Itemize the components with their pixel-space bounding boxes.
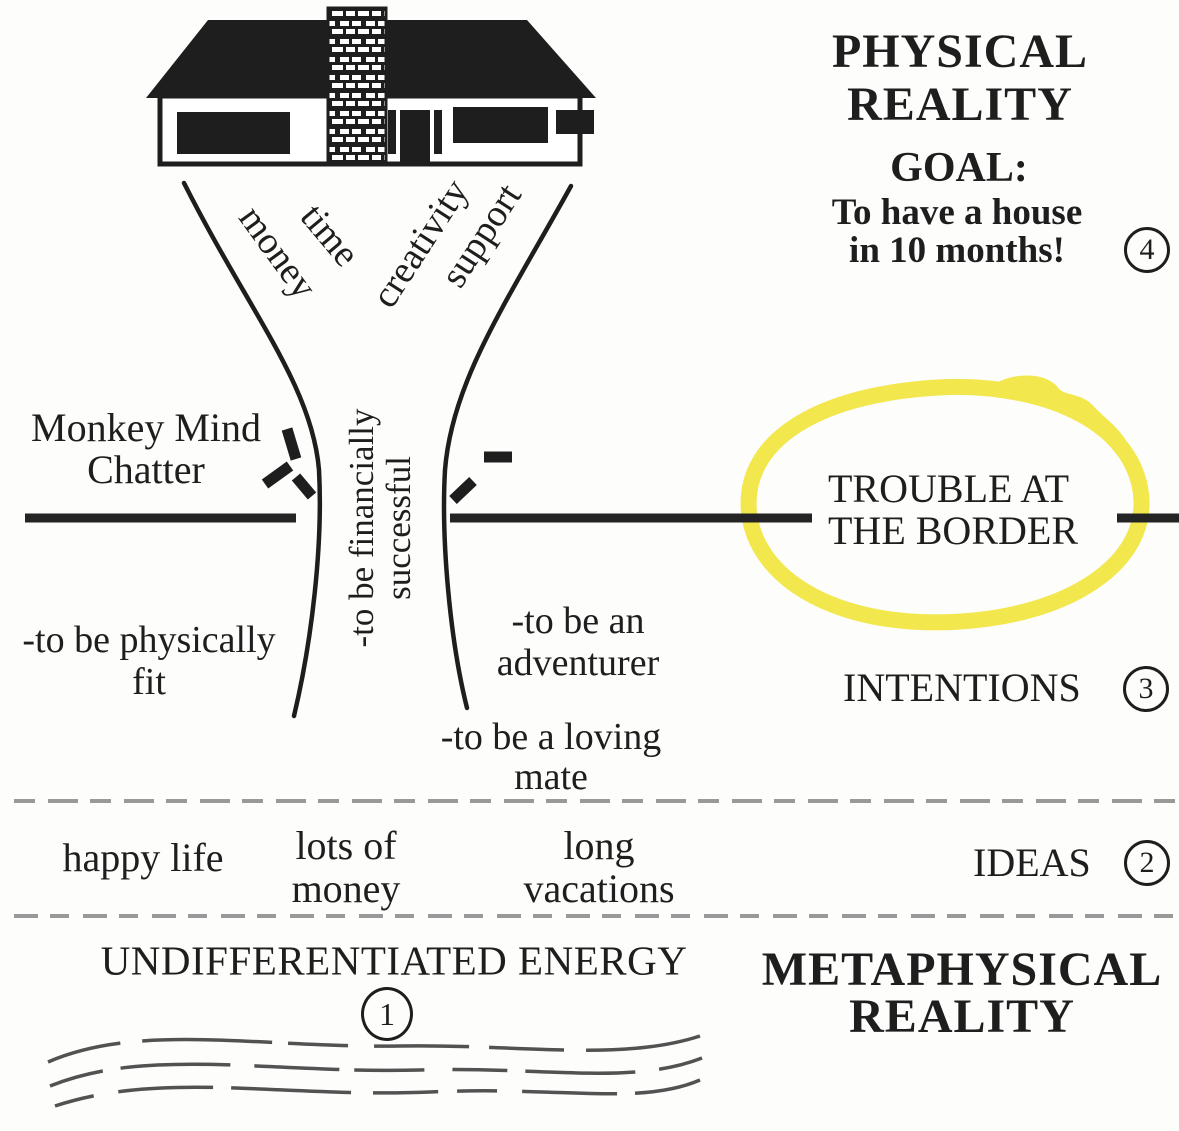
fit-line1: -to be physically xyxy=(22,619,275,661)
mate-line2: mate xyxy=(441,757,662,797)
chimney xyxy=(328,8,386,164)
step-4-badge: 4 xyxy=(1124,227,1170,273)
adventurer-line1: -to be an xyxy=(497,600,659,642)
lots-line1: lots of xyxy=(292,824,401,867)
core-intention-line2: successful xyxy=(380,408,417,647)
metaphysical-line1: METAPHYSICAL xyxy=(762,946,1162,993)
idea-long-vacations: long vacations xyxy=(523,824,674,910)
goal-label: GOAL: xyxy=(890,146,1028,190)
energy-waves xyxy=(48,1036,702,1106)
adventurer-line2: adventurer xyxy=(497,642,659,684)
garage-door xyxy=(177,112,290,154)
physical-reality-line2: REALITY xyxy=(832,78,1088,131)
goal-text-line2: in 10 months! xyxy=(832,232,1083,270)
undifferentiated-energy-label: UNDIFFERENTIATED ENERGY xyxy=(101,939,688,982)
physical-reality-title: PHYSICAL REALITY xyxy=(832,25,1088,131)
monkey-mind-line2: Chatter xyxy=(31,449,261,491)
manifestation-diagram: PHYSICAL REALITY GOAL: To have a house i… xyxy=(0,0,1179,1131)
intention-physically-fit: -to be physically fit xyxy=(22,619,275,703)
step-3-badge: 3 xyxy=(1123,666,1169,712)
idea-happy-life: happy life xyxy=(62,837,223,879)
vacations-line2: vacations xyxy=(523,867,674,910)
core-intention-line1: -to be financially xyxy=(343,408,380,647)
step-1-badge: 1 xyxy=(361,987,413,1041)
trouble-line1: TROUBLE AT xyxy=(828,468,1078,510)
physical-reality-line1: PHYSICAL xyxy=(832,25,1088,78)
step-2-badge: 2 xyxy=(1124,840,1170,886)
goal-text-line1: To have a house xyxy=(832,194,1083,232)
house-icon xyxy=(146,8,596,164)
trouble-line2: THE BORDER xyxy=(828,510,1078,552)
idea-lots-of-money: lots of money xyxy=(292,824,401,910)
goal-text: To have a house in 10 months! xyxy=(832,194,1083,270)
ideas-label: IDEAS xyxy=(973,842,1091,884)
intention-adventurer: -to be an adventurer xyxy=(497,600,659,684)
lots-line2: money xyxy=(292,867,401,910)
vacations-line1: long xyxy=(523,824,674,867)
small-window xyxy=(556,110,594,134)
intentions-label: INTENTIONS xyxy=(843,667,1081,709)
front-door xyxy=(400,110,430,162)
mate-line1: -to be a loving xyxy=(441,717,662,757)
fit-line2: fit xyxy=(22,661,275,703)
core-intention-vertical: -to be financially successful xyxy=(343,408,417,647)
window xyxy=(453,107,548,143)
metaphysical-reality-title: METAPHYSICAL REALITY xyxy=(762,946,1162,1040)
trouble-at-border-label: TROUBLE AT THE BORDER xyxy=(828,468,1078,552)
metaphysical-line2: REALITY xyxy=(762,993,1162,1040)
monkey-mind-line1: Monkey Mind xyxy=(31,407,261,449)
intention-loving-mate: -to be a loving mate xyxy=(441,717,662,797)
monkey-mind-chatter: Monkey Mind Chatter xyxy=(31,407,261,491)
